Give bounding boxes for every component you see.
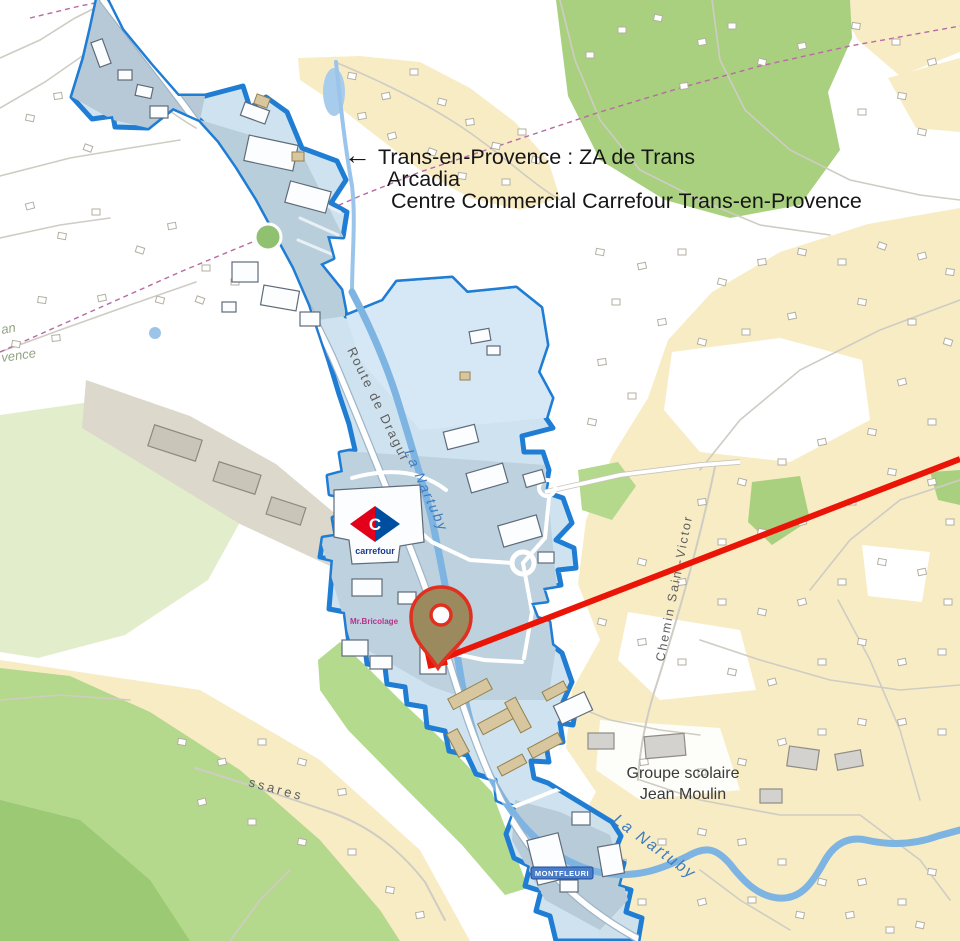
- roundabout-green: [255, 224, 281, 250]
- map-screenshot: C carrefour Route de Dragui La Nartuby L…: [0, 0, 960, 941]
- annotation-line-1: Trans-en-Provence : ZA de Trans: [378, 146, 862, 168]
- edge-label-top: an: [0, 320, 17, 337]
- left-arrow-icon: ←: [344, 146, 371, 165]
- location-pin-center: [431, 605, 451, 625]
- map-canvas[interactable]: C carrefour Route de Dragui La Nartuby L…: [0, 0, 960, 941]
- map-annotation: ← Trans-en-Provence : ZA de Trans Arcadi…: [344, 146, 862, 212]
- badge-montfleuri: MONTFLEURI: [531, 867, 593, 879]
- school-label-line2: Jean Moulin: [640, 786, 726, 803]
- carrefour-logo-letter: C: [369, 515, 381, 534]
- badge-montfleuri-text: MONTFLEURI: [535, 869, 589, 878]
- store-label-mr-bricolage: Mr.Bricolage: [350, 617, 399, 626]
- school-label-line1: Groupe scolaire: [627, 765, 740, 782]
- annotation-line-3: Centre Commercial Carrefour Trans-en-Pro…: [378, 190, 862, 212]
- annotation-text-block: Trans-en-Provence : ZA de Trans Arcadia …: [378, 146, 862, 212]
- annotation-line-2: Arcadia: [378, 168, 862, 190]
- carrefour-logo-text: carrefour: [355, 546, 395, 556]
